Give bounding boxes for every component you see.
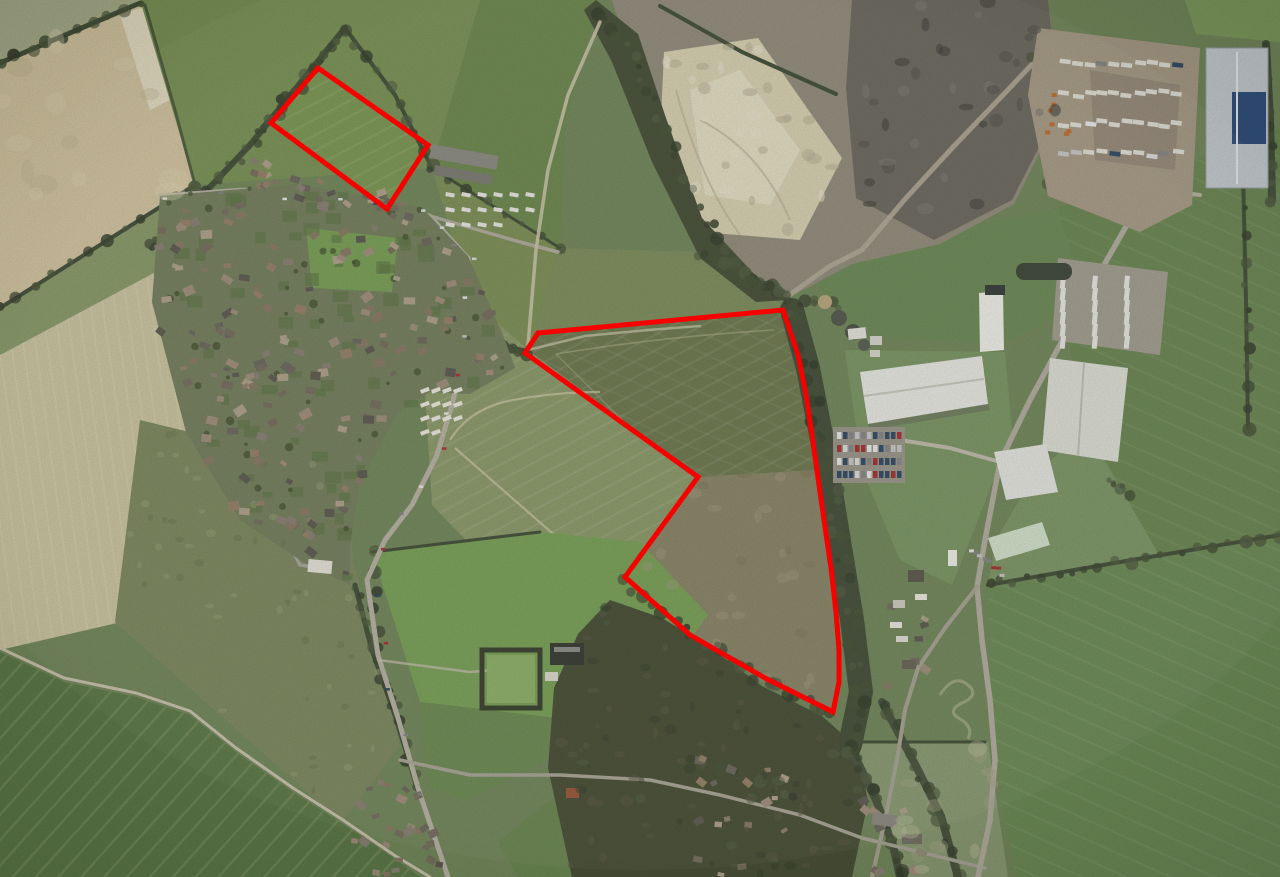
- aerial-map: [0, 0, 1280, 877]
- aerial-map-screenshot: [0, 0, 1280, 877]
